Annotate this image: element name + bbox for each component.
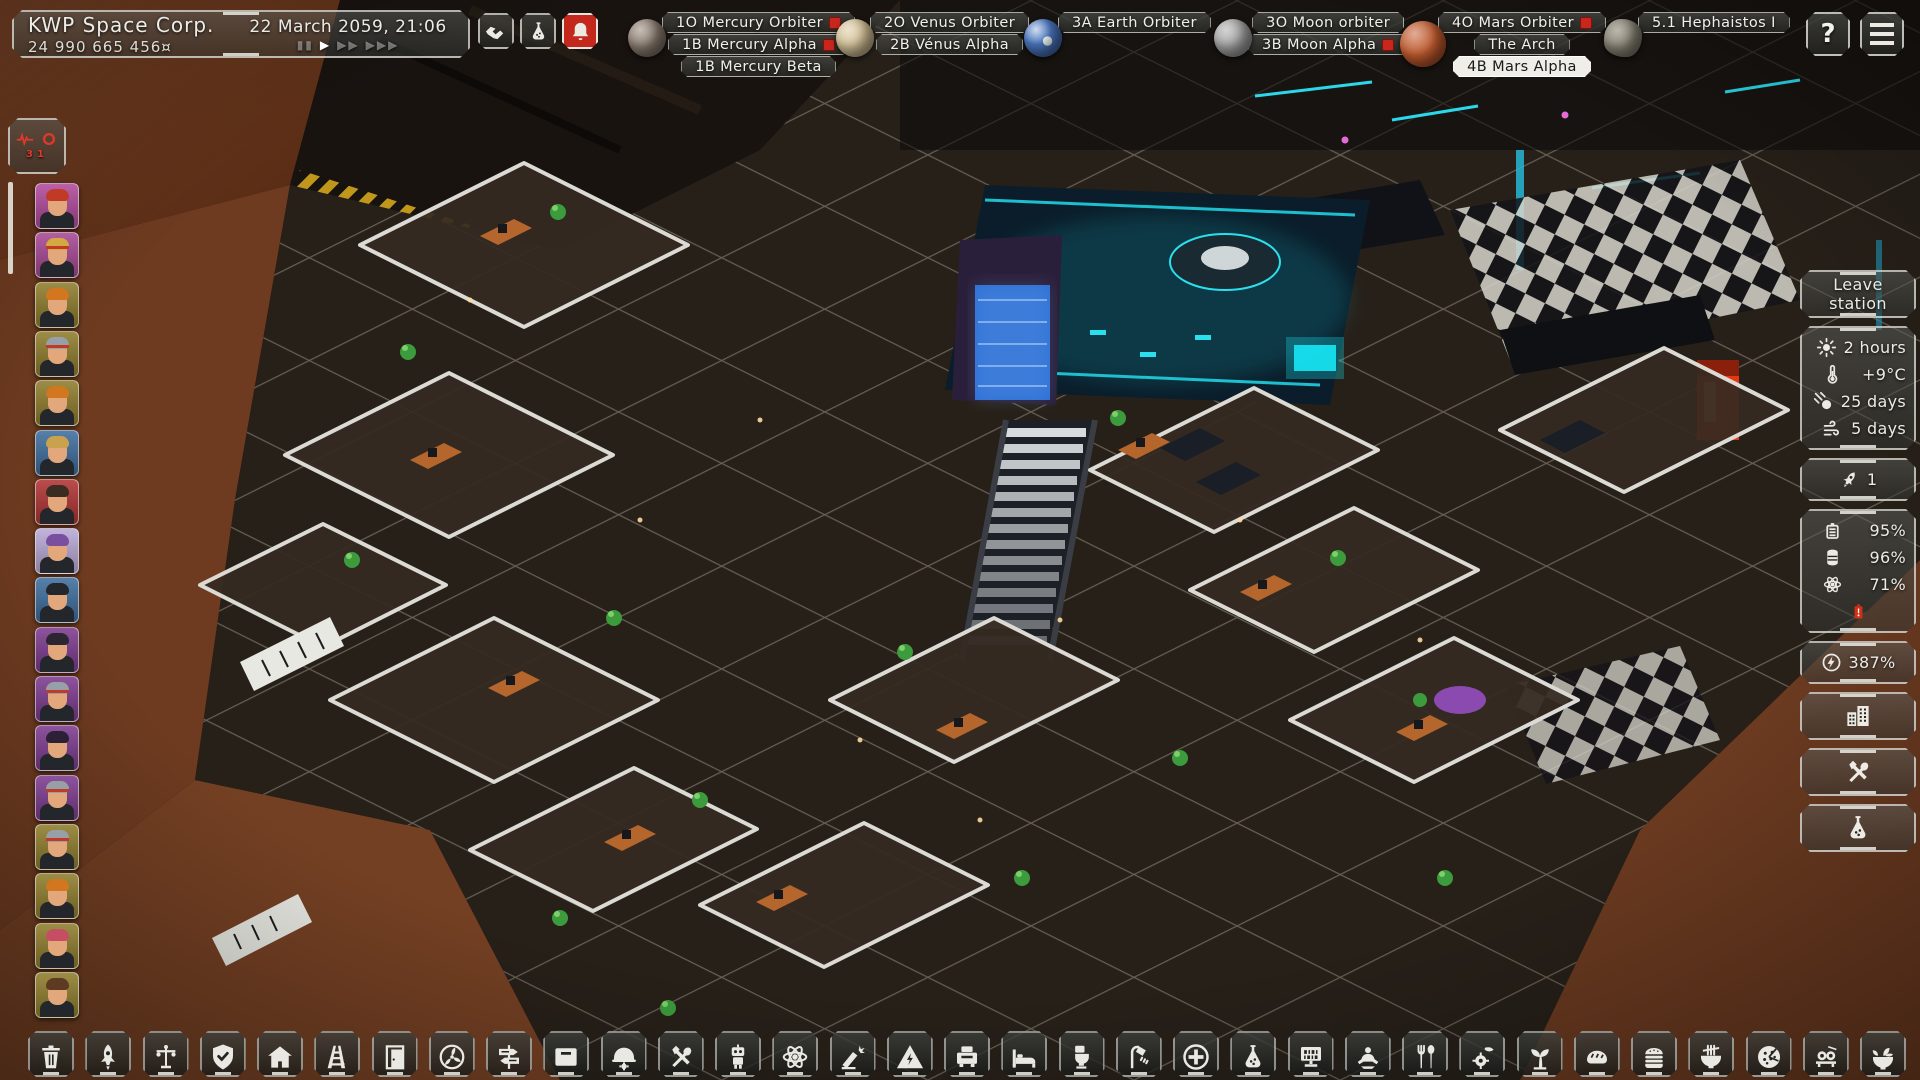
corp-funds: 24 990 665 456¤ (28, 38, 242, 56)
nav-item-4b-mars-alpha[interactable]: 4B Mars Alpha (1453, 56, 1591, 77)
nav-item-1b-mercury-beta[interactable]: 1B Mercury Beta (681, 56, 836, 77)
nav-group-venus: 2O Venus Orbiter2B Vénus Alpha (848, 12, 1029, 56)
food-processing-icon (1467, 1042, 1497, 1072)
fabrication-icon (838, 1042, 868, 1072)
toolbar-printer-button[interactable] (944, 1031, 990, 1077)
reactor-icon (1822, 574, 1843, 595)
station-side-panel: Leave station 2 hours +9°C 25 days 5 day… (1800, 270, 1916, 860)
game-scene[interactable] (0, 0, 1920, 1080)
workshop-icon (666, 1042, 696, 1072)
water-tank-icon (1822, 547, 1843, 568)
toolbar-reactor-button[interactable] (772, 1031, 818, 1077)
crew-headband (46, 789, 69, 792)
crew-alerts-widget[interactable]: 31 (8, 118, 66, 174)
medbay-icon (1181, 1042, 1211, 1072)
handshake-icon (485, 20, 508, 43)
buildings-icon (1843, 701, 1873, 731)
toolbar-wellness-button[interactable] (1345, 1031, 1391, 1077)
rocket-count: 1 (1867, 470, 1877, 489)
build-toolbar (28, 1031, 1906, 1077)
notifications-button[interactable] (562, 13, 598, 49)
corp-name: KWP Space Corp. (28, 13, 242, 37)
crew-hair (46, 288, 69, 300)
signpost-icon (494, 1042, 524, 1072)
nav-item-1o-mercury-orbiter[interactable]: 1O Mercury Orbiter (662, 12, 855, 33)
nav-item-3a-earth-orbiter[interactable]: 3A Earth Orbiter (1058, 12, 1211, 33)
moon-icon (1214, 19, 1252, 57)
engineering-icon (609, 1042, 639, 1072)
rockets-panel[interactable]: 1 (1800, 458, 1916, 501)
mars-icon (1400, 21, 1446, 67)
temperature: +9°C (1850, 365, 1906, 384)
crew-hair (46, 485, 69, 497)
crew-scrollbar[interactable] (8, 182, 13, 274)
sun-icon (1816, 337, 1837, 358)
crew-portrait-12[interactable] (35, 725, 79, 771)
meteor-countdown: 25 days (1841, 392, 1906, 411)
reactor-icon (780, 1042, 810, 1072)
nav-item-5-1-hephaistos-i[interactable]: 5.1 Hephaistos I (1638, 12, 1790, 33)
security-icon (208, 1042, 238, 1072)
crew-portrait-3[interactable] (35, 282, 79, 328)
crew-portrait-8[interactable] (35, 528, 79, 574)
sushi-bar-icon (1811, 1042, 1841, 1072)
crew-headband (46, 246, 69, 249)
nav-item-2o-venus-orbiter[interactable]: 2O Venus Orbiter (870, 12, 1029, 33)
toolbar-laboratory-button[interactable] (1230, 1031, 1276, 1077)
crew-portrait-15[interactable] (35, 873, 79, 919)
toilet-icon (1067, 1042, 1097, 1072)
flask-icon (1843, 813, 1873, 843)
leave-station-button[interactable]: Leave station (1800, 270, 1916, 318)
toolbar-workshop-button[interactable] (658, 1031, 704, 1077)
crew-headband (46, 345, 69, 348)
energy-icon (1821, 652, 1842, 673)
power-output: 387% (1849, 653, 1896, 672)
toolbar-airlock-button[interactable] (429, 1031, 475, 1077)
help-button[interactable]: ? (1806, 12, 1850, 56)
construction-button[interactable] (1800, 748, 1916, 796)
alert-marker-icon (823, 39, 835, 51)
game-window: KWP Space Corp. 24 990 665 456¤ 22 March… (0, 0, 1920, 1080)
crew-portrait-7[interactable] (35, 479, 79, 525)
nav-group-mercury: 1O Mercury Orbiter1B Mercury Alpha1B Mer… (640, 12, 855, 78)
rocket-icon (1835, 465, 1864, 494)
nav-item-4o-mars-orbiter[interactable]: 4O Mars Orbiter (1438, 12, 1606, 33)
toolbar-street-lamp-button[interactable] (143, 1031, 189, 1077)
flask-icon (527, 20, 550, 43)
nav-item-the-arch[interactable]: The Arch (1474, 34, 1570, 55)
crew-portrait-1[interactable] (35, 183, 79, 229)
toolbar-robotics-button[interactable] (715, 1031, 761, 1077)
meteor-icon (1813, 391, 1834, 412)
battery-icon (1822, 520, 1843, 541)
toolbar-shower-button[interactable] (1116, 1031, 1162, 1077)
pause-button[interactable]: ▮▮ (294, 38, 317, 52)
toolbar-dining-button[interactable] (1402, 1031, 1448, 1077)
salad-bar-icon (1868, 1042, 1898, 1072)
rocket-icon (93, 1042, 123, 1072)
bell-icon (569, 20, 592, 43)
fastest-forward-button[interactable]: ▶▶▶ (363, 38, 403, 52)
crew-portrait-17[interactable] (35, 972, 79, 1018)
crew-portrait-10[interactable] (35, 627, 79, 673)
crew-portrait-16[interactable] (35, 923, 79, 969)
laboratory-icon (1238, 1042, 1268, 1072)
crew-hair (46, 633, 69, 645)
daylight-remaining: 2 hours (1844, 338, 1906, 357)
oxygen-alert-icon (40, 132, 58, 146)
crew-headband (46, 838, 69, 841)
pizzeria-icon (1754, 1042, 1784, 1072)
alert-marker-icon (1580, 17, 1592, 29)
crew-portrait-14[interactable] (35, 824, 79, 870)
nav-item-label: 4O Mars Orbiter (1452, 15, 1574, 31)
nav-item-label: 5.1 Hephaistos I (1652, 15, 1776, 31)
toolbar-sushi-bar-button[interactable] (1803, 1031, 1849, 1077)
toolbar-storage-button[interactable] (543, 1031, 589, 1077)
noodle-bar-icon (1696, 1042, 1726, 1072)
toolbar-medbay-button[interactable] (1173, 1031, 1219, 1077)
nav-item-label: 3B Moon Alpha (1262, 37, 1376, 53)
game-datetime: 22 March 2059, 21:06 (242, 17, 454, 37)
time-controls: ▮▮▶▶▶▶▶▶ (242, 38, 454, 52)
power-panel: 387% (1800, 641, 1916, 684)
toolbar-habitat-button[interactable] (257, 1031, 303, 1077)
crew-portrait-11[interactable] (35, 676, 79, 722)
play-button[interactable]: ▶ (317, 38, 334, 52)
dust-storm-icon (1822, 418, 1843, 439)
toolbar-greenhouse-button[interactable] (1517, 1031, 1563, 1077)
habitat-icon (265, 1042, 295, 1072)
toolbar-bakery-button[interactable] (1574, 1031, 1620, 1077)
toolbar-fabrication-button[interactable] (830, 1031, 876, 1077)
crew-hair (46, 534, 69, 546)
toolbar-power-button[interactable] (887, 1031, 933, 1077)
menu-button[interactable] (1860, 12, 1904, 56)
nav-item-2b-v-nus-alpha[interactable]: 2B Vénus Alpha (876, 34, 1023, 55)
battery-level: 95% (1850, 521, 1906, 540)
research-panel-button[interactable] (1800, 804, 1916, 852)
toolbar-signpost-button[interactable] (486, 1031, 532, 1077)
wellness-icon (1353, 1042, 1383, 1072)
nav-group-asteroid: 5.1 Hephaistos I (1616, 12, 1790, 34)
nav-item-label: 2O Venus Orbiter (884, 15, 1015, 31)
venus-icon (836, 19, 874, 57)
toolbar-pizzeria-button[interactable] (1746, 1031, 1792, 1077)
battery-low-icon (1848, 601, 1869, 622)
mercury-icon (628, 19, 666, 57)
toolbar-burger-bar-button[interactable] (1631, 1031, 1677, 1077)
burger-bar-icon (1639, 1042, 1669, 1072)
crew-portrait-2[interactable] (35, 232, 79, 278)
demolish-icon (36, 1042, 66, 1072)
alert-count: 3 (26, 149, 37, 160)
nav-item-3b-moon-alpha[interactable]: 3B Moon Alpha (1248, 34, 1408, 55)
crew-hair (46, 583, 69, 595)
storage-icon (551, 1042, 581, 1072)
crew-portrait-13[interactable] (35, 775, 79, 821)
nav-item-label: 2B Vénus Alpha (890, 37, 1009, 53)
environment-panel: 2 hours +9°C 25 days 5 days (1800, 326, 1916, 450)
tools-icon (1843, 757, 1873, 787)
toolbar-noodle-bar-button[interactable] (1688, 1031, 1734, 1077)
corp-panel: KWP Space Corp. 24 990 665 456¤ 22 March… (12, 10, 470, 58)
toolbar-engineering-button[interactable] (601, 1031, 647, 1077)
crew-hair (46, 879, 69, 891)
buildings-button[interactable] (1800, 692, 1916, 740)
toolbar-bedroom-button[interactable] (1001, 1031, 1047, 1077)
nav-item-3o-moon-orbiter[interactable]: 3O Moon orbiter (1252, 12, 1404, 33)
power-icon (895, 1042, 925, 1072)
alert-marker-icon (1382, 39, 1394, 51)
nav-item-label: 1B Mercury Alpha (682, 37, 817, 53)
nav-group-mars: 4O Mars OrbiterThe Arch4B Mars Alpha (1416, 12, 1606, 78)
shower-icon (1124, 1042, 1154, 1072)
crew-hair (46, 189, 69, 201)
door-icon (380, 1042, 410, 1072)
airlock-icon (437, 1042, 467, 1072)
nav-item-label: 3A Earth Orbiter (1072, 15, 1197, 31)
robotics-icon (723, 1042, 753, 1072)
crew-hair (46, 929, 69, 941)
toolbar-door-button[interactable] (372, 1031, 418, 1077)
bakery-icon (1582, 1042, 1612, 1072)
toolbar-demolish-button[interactable] (28, 1031, 74, 1077)
tracks-icon (322, 1042, 352, 1072)
printer-icon (952, 1042, 982, 1072)
nav-item-label: 1B Mercury Beta (695, 59, 822, 75)
nav-item-label: The Arch (1488, 37, 1556, 53)
crew-hair (46, 731, 69, 743)
street-lamp-icon (151, 1042, 181, 1072)
trade-button[interactable] (478, 13, 514, 49)
crew-hair (46, 978, 69, 990)
toolbar-tracks-button[interactable] (314, 1031, 360, 1077)
crew-portrait-5[interactable] (35, 380, 79, 426)
nav-item-label: 3O Moon orbiter (1266, 15, 1390, 31)
nav-group-earth: 3A Earth Orbiter (1036, 12, 1211, 34)
resources-panel: 95% 96% 71% (1800, 509, 1916, 633)
reactor-level: 71% (1850, 575, 1906, 594)
toolbar-computers-button[interactable] (1288, 1031, 1334, 1077)
toolbar-security-button[interactable] (200, 1031, 246, 1077)
toolbar-rocket-button[interactable] (85, 1031, 131, 1077)
nav-group-moon: 3O Moon orbiter3B Moon Alpha (1226, 12, 1408, 56)
research-button[interactable] (520, 13, 556, 49)
nav-item-label: 1O Mercury Orbiter (676, 15, 823, 31)
crew-portrait-9[interactable] (35, 577, 79, 623)
computers-icon (1296, 1042, 1326, 1072)
storm-countdown: 5 days (1850, 419, 1906, 438)
earth-icon (1024, 19, 1062, 57)
asteroid-icon (1604, 19, 1642, 57)
heartbeat-alert-icon (16, 132, 34, 146)
crew-portrait-4[interactable] (35, 331, 79, 377)
toolbar-toilet-button[interactable] (1059, 1031, 1105, 1077)
toolbar-salad-bar-button[interactable] (1860, 1031, 1906, 1077)
greenhouse-icon (1525, 1042, 1555, 1072)
crew-headband (46, 690, 69, 693)
crew-hair (46, 436, 69, 448)
toolbar-food-processing-button[interactable] (1459, 1031, 1505, 1077)
hamburger-icon (1870, 23, 1894, 27)
thermometer-icon (1822, 364, 1843, 385)
crew-portrait-6[interactable] (35, 430, 79, 476)
fast-forward-button[interactable]: ▶▶ (334, 38, 362, 52)
nav-item-label: 4B Mars Alpha (1467, 59, 1577, 75)
alert-count: 1 (37, 149, 48, 160)
nav-item-1b-mercury-alpha[interactable]: 1B Mercury Alpha (668, 34, 849, 55)
water-level: 96% (1850, 548, 1906, 567)
crew-hair (46, 386, 69, 398)
dining-icon (1410, 1042, 1440, 1072)
bedroom-icon (1009, 1042, 1039, 1072)
